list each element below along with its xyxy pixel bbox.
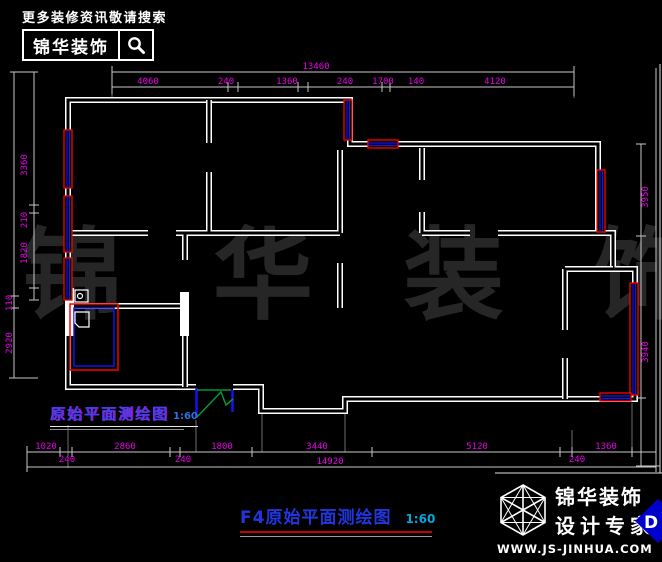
dim-label: 1820 <box>20 242 30 264</box>
dim-label: 140 <box>408 77 424 87</box>
window-symbol-left-3 <box>64 258 72 300</box>
header-search-logo: 更多装修资讯敬请搜索 锦华装饰 <box>22 7 167 61</box>
title-block: F4原始平面测绘图1:60 <box>240 503 440 537</box>
header-tagline: 更多装修资讯敬请搜索 <box>22 7 167 26</box>
dim-label: 240 <box>175 455 191 465</box>
dim-label: 240 <box>218 77 234 87</box>
title-scale: 1:60 <box>405 512 435 526</box>
plan-label: 原始平面测绘图1:60 <box>50 403 200 430</box>
cube-logo-icon <box>497 483 549 537</box>
dim-label: 4120 <box>484 77 506 87</box>
window-symbol-left-1 <box>64 130 72 188</box>
dim-label: 1020 <box>35 442 57 452</box>
dim-label: 240 <box>337 77 353 87</box>
window-symbol-left-2 <box>64 196 72 252</box>
dim-label: 110 <box>5 295 15 311</box>
badge-letter: D <box>644 513 658 533</box>
floor-plan-canvas: 锦 华 装 饰 <box>0 0 662 562</box>
title-text: F4原始平面测绘图 <box>240 508 391 528</box>
dim-label: 240 <box>59 455 75 465</box>
plan-label-text: 原始平面测绘图 <box>50 403 169 424</box>
entry-door <box>197 388 234 418</box>
dim-label: 1800 <box>211 442 233 452</box>
window-symbol-right-upper <box>597 170 605 232</box>
wall-post <box>180 292 189 336</box>
search-icon <box>118 31 152 59</box>
title-underline-red <box>240 531 432 533</box>
dim-label: 1360 <box>276 77 298 87</box>
footer-website: WWW.JS-JINHUA.COM <box>497 542 657 556</box>
door-swing-icon <box>197 390 233 417</box>
dim-label: 1360 <box>595 442 617 452</box>
dim-label: 3360 <box>20 154 30 176</box>
dim-label: 1700 <box>372 77 394 87</box>
play-badge-icon: D <box>634 498 662 544</box>
window-symbol-top-strip <box>344 100 352 140</box>
dim-label: 210 <box>20 212 30 228</box>
header-brand-label: 锦华装饰 <box>24 31 118 59</box>
plan-label-underline <box>50 426 198 427</box>
dim-label-bottom-total: 14920 <box>316 457 343 467</box>
cad-floorplan-screenshot: { "header": { "tagline": "更多装修资讯敬请搜索", "… <box>0 0 662 562</box>
dim-label: 5120 <box>466 442 488 452</box>
dim-label: 240 <box>569 455 585 465</box>
plan-label-scale: 1:60 <box>173 411 198 422</box>
footer-logo: 锦华装饰 设计专家 WWW.JS-JINHUA.COM <box>497 481 657 556</box>
dim-label: 2860 <box>114 442 136 452</box>
dim-label-top-total: 13460 <box>302 62 329 72</box>
window-symbol-top <box>368 140 398 148</box>
dim-label: 4060 <box>137 77 159 87</box>
title-underline-gray <box>240 536 432 537</box>
header-brand-box: 锦华装饰 <box>22 29 154 61</box>
dim-label: 3950 <box>641 186 651 208</box>
dim-label: 3940 <box>641 341 651 363</box>
plan-label-underline-2 <box>50 429 184 430</box>
dim-label: 2920 <box>5 332 15 354</box>
dim-label: 3440 <box>306 442 328 452</box>
